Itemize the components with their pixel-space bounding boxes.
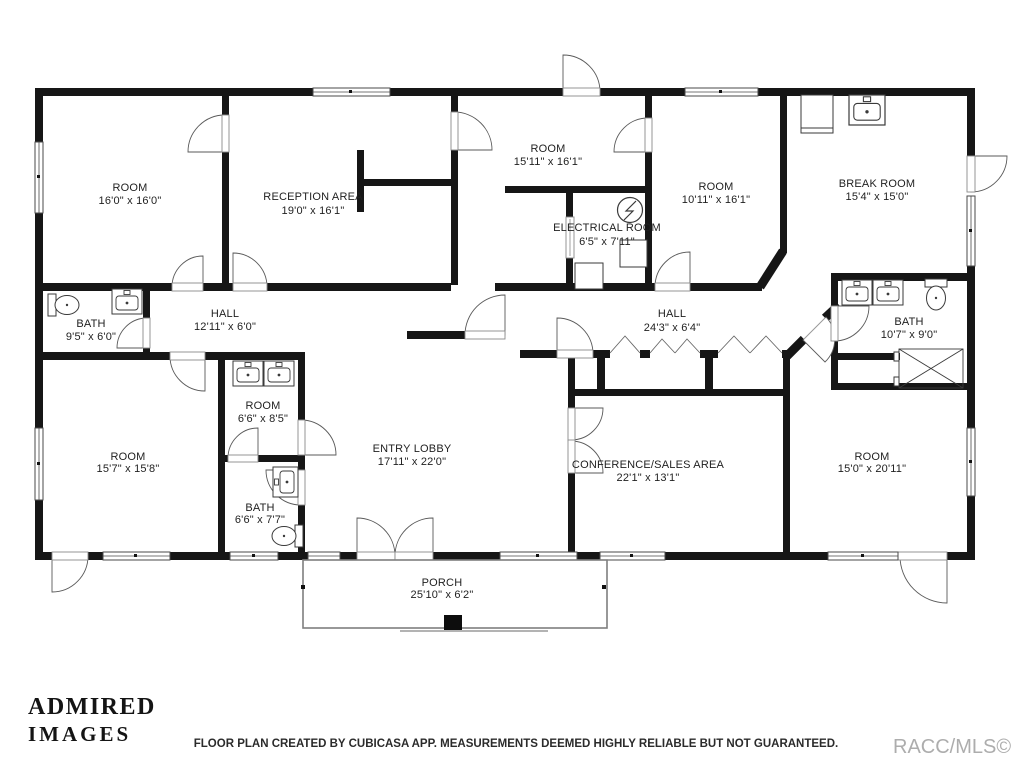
shower-fixture [894, 349, 963, 388]
room-label-porch-dims: 25'10" x 6'2" [411, 589, 474, 601]
sink-fixture-bath2-left [842, 280, 872, 305]
toilet-fixture-bath1 [48, 294, 79, 316]
room-label-room66-name: ROOM [245, 400, 280, 412]
sink-fixture-bath2-right [873, 280, 903, 305]
room-label-room157-dims: 15'7" x 15'8" [97, 463, 160, 475]
floor-plan-page: ROOM 16'0" x 16'0" RECEPTION AREA 19'0" … [0, 0, 1024, 768]
room-label-room1011-name: ROOM [698, 181, 733, 193]
room-label-breakroom-dims: 15'4" x 15'0" [846, 191, 909, 203]
branding: ADMIRED IMAGES FLOOR PLAN CREATED BY CUB… [28, 694, 1011, 758]
room-label-entry-dims: 17'11" x 22'0" [378, 456, 446, 468]
room-label-bath1-name: BATH [76, 318, 105, 330]
room-label-room16-dims: 16'0" x 16'0" [99, 195, 162, 207]
room-label-room150-dims: 15'0" x 20'11" [838, 463, 906, 475]
room-label-room16-name: ROOM [112, 182, 147, 194]
sink-fixture-room66-left [233, 361, 263, 386]
room-label-room150-name: ROOM [854, 451, 889, 463]
mls-attribution: RACC/MLS© [893, 736, 1011, 758]
room-label-porch-name: PORCH [422, 577, 463, 589]
room-label-hall1-dims: 12'11" x 6'0" [194, 321, 256, 333]
room-label-room1511-dims: 15'11" x 16'1" [514, 156, 582, 168]
room-label-conference-name: CONFERENCE/SALES AREA [572, 459, 725, 471]
floor-plan-canvas: ROOM 16'0" x 16'0" RECEPTION AREA 19'0" … [0, 0, 1024, 768]
sink-fixture-bath1 [112, 289, 142, 314]
room-label-hall2-dims: 24'3" x 6'4" [644, 322, 701, 334]
room-label-room1511-name: ROOM [530, 143, 565, 155]
room-label-bath1-dims: 9'5" x 6'0" [66, 331, 116, 343]
sink-fixture-room66-right [264, 361, 294, 386]
room-label-room157-name: ROOM [110, 451, 145, 463]
toilet-fixture-bath3 [272, 525, 303, 547]
room-label-reception-name: RECEPTION AREA [263, 191, 363, 203]
sink-fixture-breakroom [849, 95, 885, 125]
room-label-hall1-name: HALL [211, 308, 239, 320]
disclaimer-text: FLOOR PLAN CREATED BY CUBICASA APP. MEAS… [194, 738, 838, 750]
room-label-conference-dims: 22'1" x 13'1" [617, 472, 680, 484]
room-label-entry-name: ENTRY LOBBY [373, 443, 452, 455]
closet-doors [610, 336, 782, 353]
refrigerator-fixture [801, 95, 833, 133]
toilet-fixture-bath2 [925, 279, 947, 310]
logo-line1: ADMIRED [28, 694, 156, 720]
room-label-room1011-dims: 10'11" x 16'1" [682, 194, 750, 206]
room-label-electrical-dims: 6'5" x 7'11" [579, 236, 635, 248]
room-label-electrical-name: ELECTRICAL ROOM [553, 222, 661, 234]
room-label-bath2-dims: 10'7" x 9'0" [881, 329, 938, 341]
room-label-bath3-name: BATH [245, 502, 274, 514]
room-label-reception-dims: 19'0" x 16'1" [282, 205, 345, 217]
room-label-room66-dims: 6'6" x 8'5" [238, 413, 288, 425]
porch-step [444, 615, 462, 630]
room-label-hall2-name: HALL [658, 308, 686, 320]
logo-line2: IMAGES [28, 722, 131, 746]
room-label-breakroom-name: BREAK ROOM [839, 178, 916, 190]
room-label-bath3-dims: 6'6" x 7'7" [235, 514, 285, 526]
sink-fixture-bath3 [273, 467, 298, 497]
room-label-bath2-name: BATH [894, 316, 923, 328]
